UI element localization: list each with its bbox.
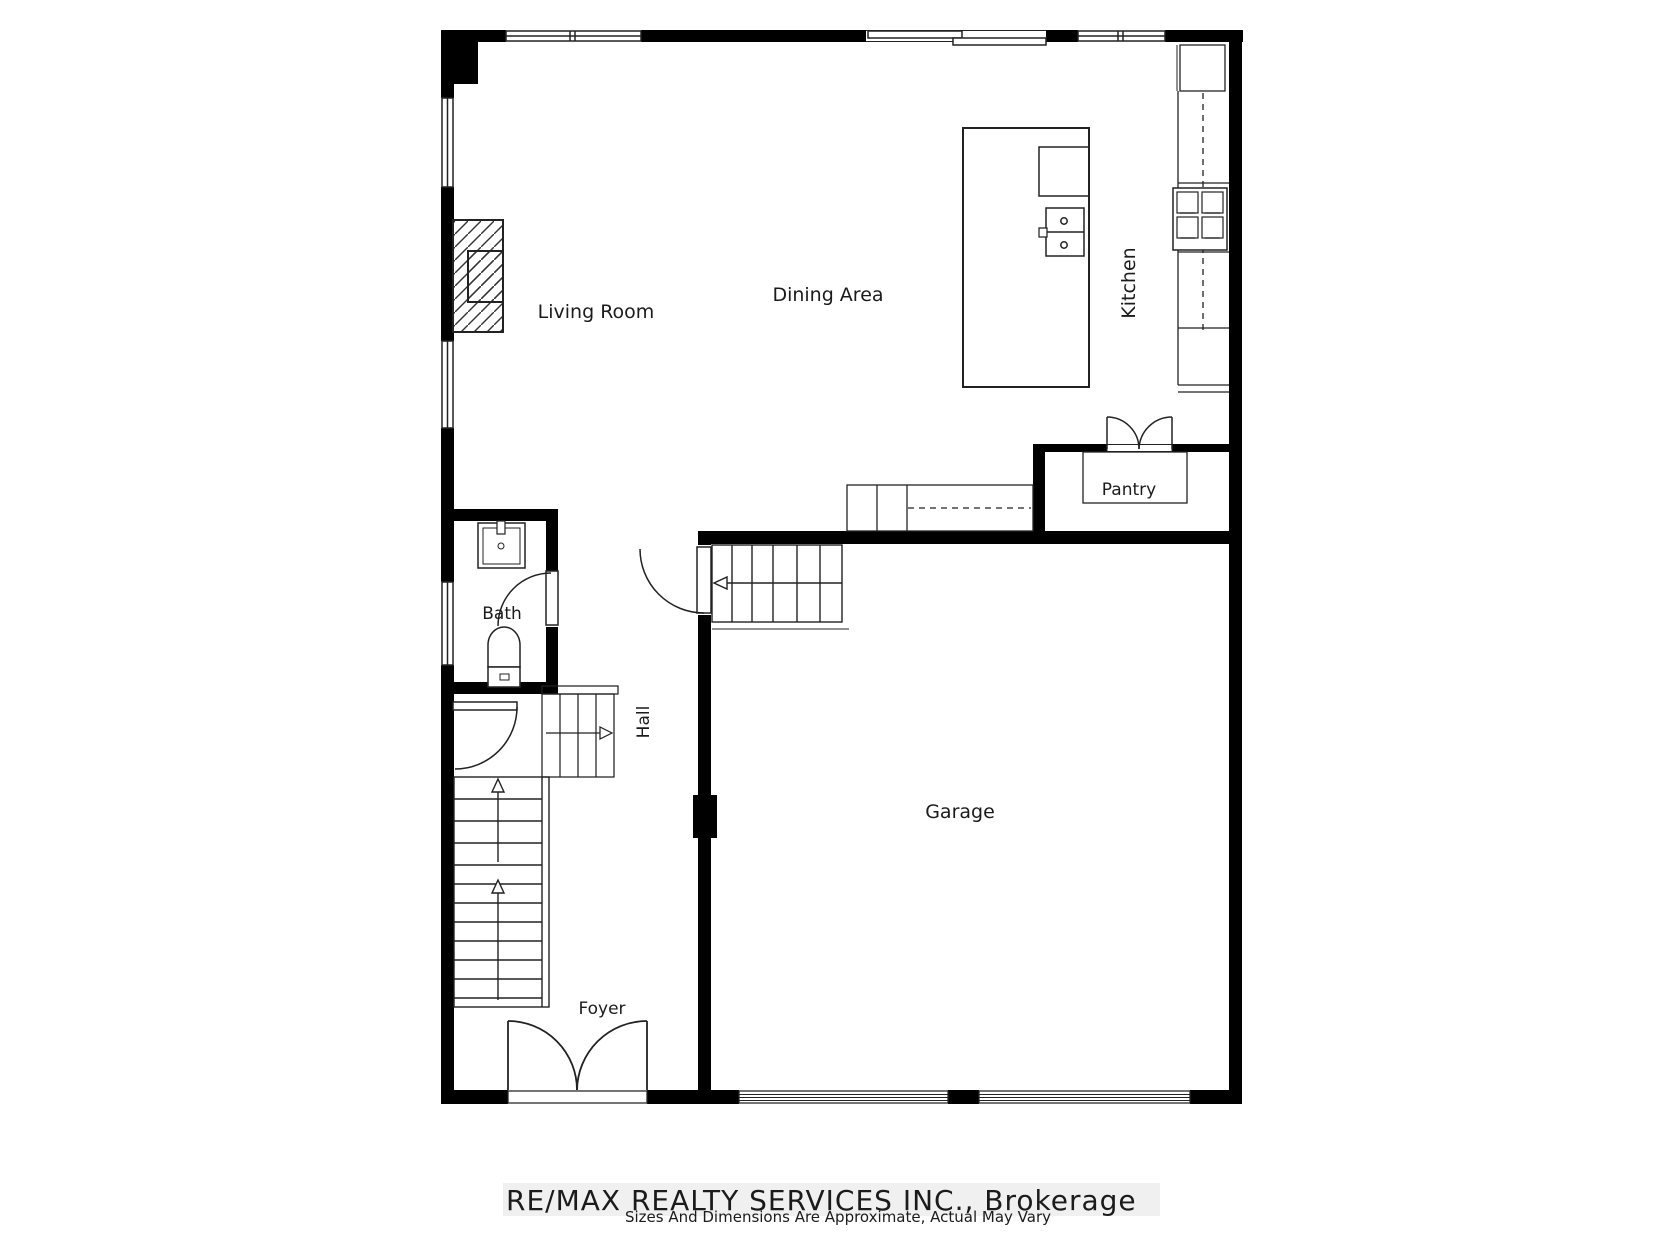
garage-door-right xyxy=(979,1091,1190,1103)
basement-arrow-head xyxy=(714,577,727,589)
wall-bath-top xyxy=(441,509,558,521)
room-labels: Living Room Dining Area Kitchen Pantry B… xyxy=(482,247,1156,1019)
island-faucet xyxy=(1039,228,1047,237)
room-label-dining-area: Dining Area xyxy=(772,284,883,306)
room-label-kitchen: Kitchen xyxy=(1118,247,1140,318)
floorplan-page: Living Room Dining Area Kitchen Pantry B… xyxy=(0,0,1680,1260)
garage-door-left xyxy=(739,1091,948,1103)
room-label-bath: Bath xyxy=(482,604,522,624)
island-sink xyxy=(1039,208,1084,256)
wall-right xyxy=(1229,30,1242,1104)
hall-closet-door xyxy=(453,702,517,769)
room-label-foyer: Foyer xyxy=(578,999,625,1019)
disclaimer-text: Sizes And Dimensions Are Approximate, Ac… xyxy=(625,1208,1051,1226)
winder-arrow-head xyxy=(600,727,612,739)
toilet-flush xyxy=(500,674,509,680)
garage-man-door xyxy=(640,547,711,613)
room-label-pantry: Pantry xyxy=(1102,480,1156,500)
fireplace xyxy=(453,220,503,332)
wall-pier xyxy=(693,795,717,838)
wall-pantry-left xyxy=(1033,444,1045,544)
front-entry-double-door xyxy=(508,1021,647,1103)
stairs-winder xyxy=(542,686,618,777)
dining-counter xyxy=(847,485,1033,531)
floorplan-svg: Living Room Dining Area Kitchen Pantry B… xyxy=(0,0,1680,1260)
island-cooktop xyxy=(1039,147,1089,196)
bath-vanity xyxy=(478,521,525,568)
vanity-drain xyxy=(498,543,504,549)
toilet xyxy=(488,627,520,687)
kitchen-counter xyxy=(1173,45,1229,392)
room-label-garage: Garage xyxy=(925,801,995,823)
stairs-main xyxy=(454,777,549,1007)
wall-left xyxy=(441,30,454,1104)
kitchen-island xyxy=(963,128,1089,387)
vanity-faucet xyxy=(497,521,505,534)
stove xyxy=(1173,188,1227,250)
footer: RE/MAX REALTY SERVICES INC., Brokerage S… xyxy=(503,1183,1160,1226)
wall-garage-top xyxy=(698,531,1229,544)
fridge xyxy=(1180,45,1225,91)
wall-corner-block xyxy=(441,30,478,84)
stairs-basement xyxy=(712,545,849,629)
doors xyxy=(453,417,1172,1103)
stairs-up-arrow-head xyxy=(492,779,504,792)
room-label-hall: Hall xyxy=(634,706,654,739)
room-label-living-room: Living Room xyxy=(538,301,655,323)
pantry-double-door xyxy=(1107,417,1172,452)
stairs-up-arrow2-head xyxy=(492,880,504,893)
